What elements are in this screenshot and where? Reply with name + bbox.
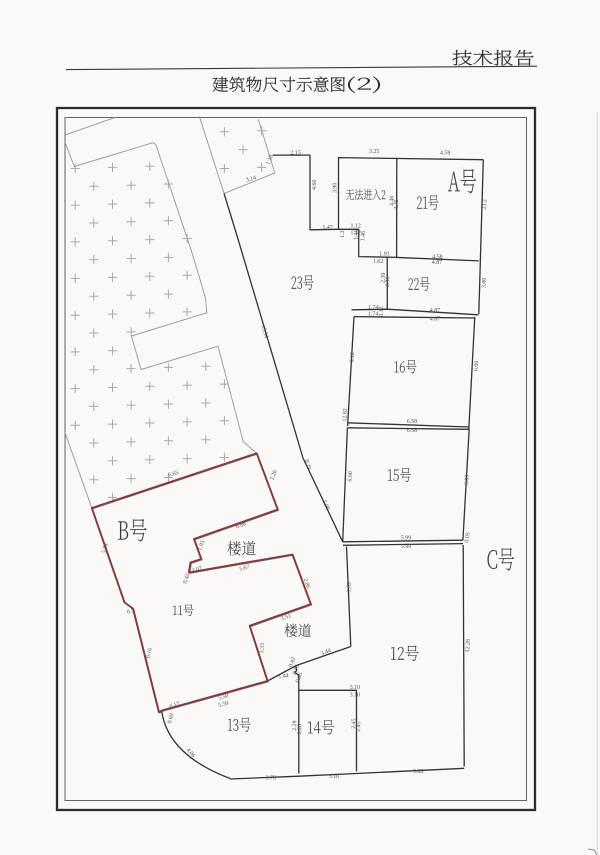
svg-text:1.91: 1.91 bbox=[379, 251, 389, 257]
svg-text:3.90: 3.90 bbox=[333, 183, 339, 193]
svg-text:1.3: 1.3 bbox=[340, 230, 346, 237]
svg-text:3.00: 3.00 bbox=[482, 278, 488, 289]
svg-text:1.74: 1.74 bbox=[368, 305, 378, 311]
svg-text:6.58: 6.58 bbox=[407, 419, 417, 425]
svg-text:3.33: 3.33 bbox=[259, 643, 266, 654]
svg-text:4.87: 4.87 bbox=[430, 308, 440, 314]
svg-text:5.99: 5.99 bbox=[401, 544, 411, 550]
svg-text:3.10: 3.10 bbox=[329, 774, 339, 780]
svg-text:6.58: 6.58 bbox=[407, 428, 417, 434]
svg-text:5.88: 5.88 bbox=[413, 769, 423, 775]
svg-text:3.78: 3.78 bbox=[266, 776, 276, 782]
svg-text:5.99: 5.99 bbox=[401, 536, 411, 542]
svg-text:23.2: 23.2 bbox=[482, 199, 488, 210]
svg-text:2.45: 2.45 bbox=[356, 721, 362, 732]
svg-text:4.58: 4.58 bbox=[440, 151, 450, 157]
svg-text:2.28: 2.28 bbox=[297, 724, 303, 735]
svg-text:6.60: 6.60 bbox=[348, 471, 354, 482]
svg-text:2.15: 2.15 bbox=[291, 151, 301, 157]
svg-text:1.46: 1.46 bbox=[353, 229, 360, 240]
svg-text:2.30: 2.30 bbox=[385, 277, 392, 288]
svg-text:12.28: 12.28 bbox=[465, 639, 472, 653]
svg-text:1.12: 1.12 bbox=[351, 223, 361, 229]
svg-text:4.87: 4.87 bbox=[432, 260, 442, 266]
svg-text:12.82: 12.82 bbox=[342, 408, 349, 422]
svg-text:3.25: 3.25 bbox=[369, 149, 379, 155]
svg-text:3.10: 3.10 bbox=[350, 685, 360, 691]
svg-text:1.74: 1.74 bbox=[368, 312, 378, 318]
svg-text:4.45: 4.45 bbox=[394, 199, 400, 209]
svg-text:3.65: 3.65 bbox=[347, 582, 353, 593]
svg-text:1.46: 1.46 bbox=[360, 231, 367, 242]
svg-text:4.87: 4.87 bbox=[430, 317, 440, 323]
svg-text:6.12: 6.12 bbox=[350, 352, 357, 363]
svg-text:4.66: 4.66 bbox=[312, 180, 318, 190]
svg-text:0.12: 0.12 bbox=[379, 306, 385, 316]
svg-text:3.10: 3.10 bbox=[350, 693, 360, 699]
svg-text:6.06: 6.06 bbox=[474, 361, 480, 372]
svg-text:1.47: 1.47 bbox=[323, 225, 333, 231]
svg-text:6.03: 6.03 bbox=[464, 475, 470, 486]
svg-text:1.62: 1.62 bbox=[373, 259, 383, 265]
